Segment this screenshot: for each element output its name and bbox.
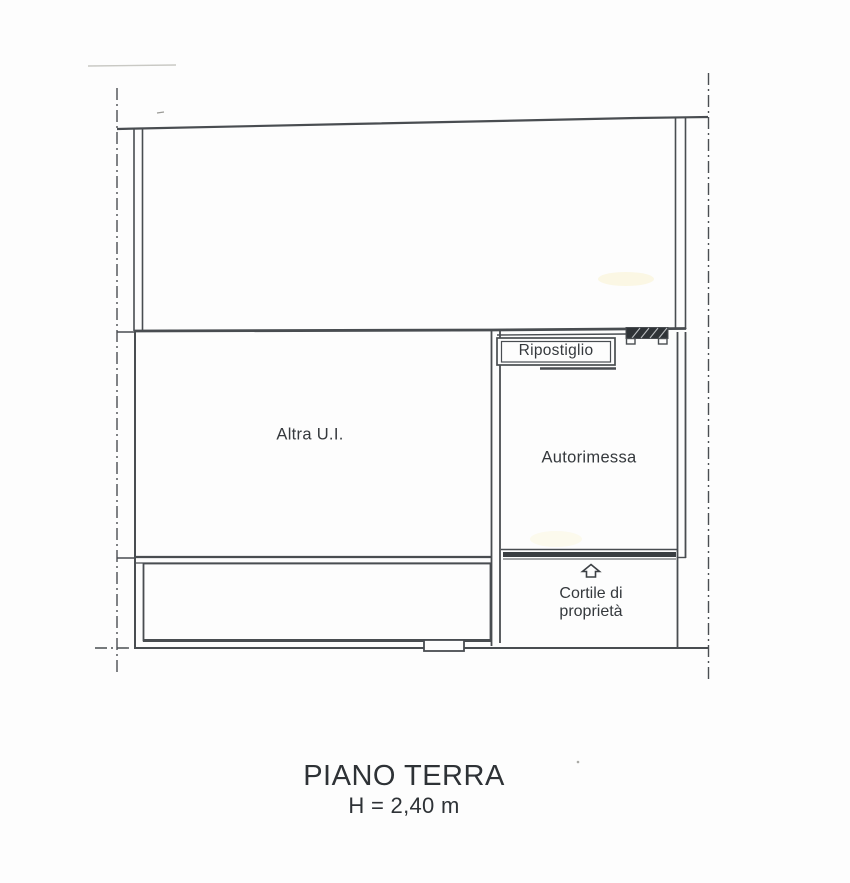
gate-threshold <box>424 640 464 651</box>
title-block: PIANO TERRA H = 2,40 m <box>303 760 505 820</box>
hatched-door-sill <box>626 328 668 345</box>
room-label-autorimessa: Autorimessa <box>541 449 636 468</box>
upper-room-walls <box>117 117 708 331</box>
highlighter-smudge <box>598 272 654 286</box>
right-walls <box>677 332 686 648</box>
floor-title: PIANO TERRA <box>303 760 505 792</box>
floorplan-page: Altra U.I. Ripostiglio Autorimessa Corti… <box>0 0 850 883</box>
room-label-cortile: Cortile di proprietà <box>559 585 622 621</box>
central-partition-wall <box>492 330 501 646</box>
cortile-label-line2: proprietà <box>559 603 622 621</box>
up-arrow-icon <box>583 565 600 578</box>
garage-door <box>501 550 677 560</box>
scan-artifacts <box>88 65 654 763</box>
highlighter-smudge <box>530 531 582 547</box>
room-label-ripostiglio: Ripostiglio <box>519 342 594 360</box>
room-label-altra-ui: Altra U.I. <box>276 426 343 445</box>
floor-height-note: H = 2,40 m <box>303 792 505 820</box>
room-altra-ui-walls <box>117 331 492 563</box>
middle-divider-wall <box>117 329 686 336</box>
cortile-label-line1: Cortile di <box>559 585 622 603</box>
floorplan-drawing <box>0 0 850 883</box>
